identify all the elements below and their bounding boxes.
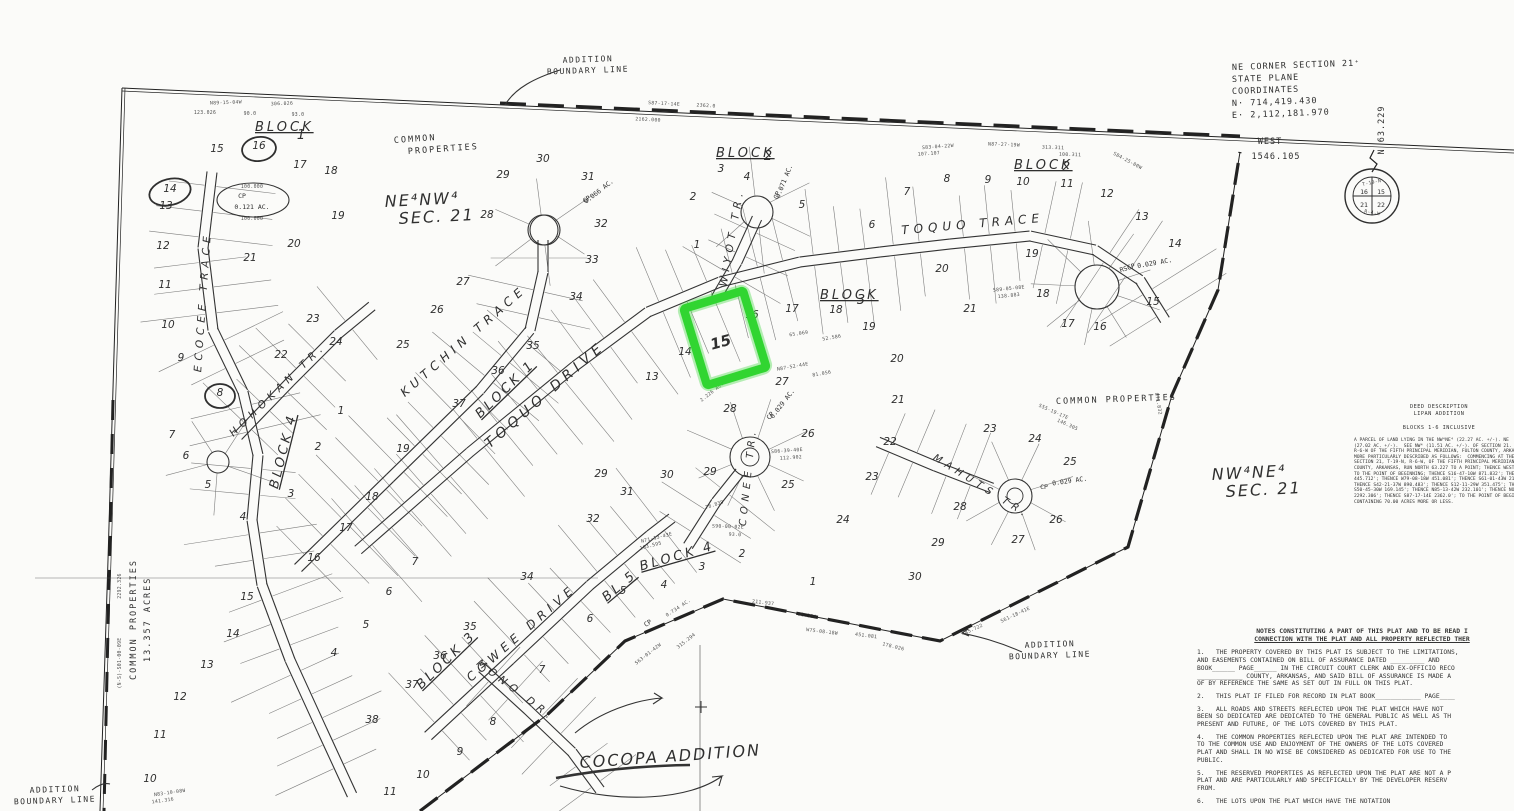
street-label-toquo-trace: TOQUO TRACE bbox=[901, 211, 1045, 237]
notes-line: BOOK______ PAGE______ IN THE CIRCUIT COU… bbox=[1197, 665, 1514, 673]
cul-de-sac bbox=[528, 215, 558, 245]
area-label: SEC. 21 bbox=[1225, 478, 1302, 501]
lot-number: 37 bbox=[452, 398, 466, 410]
lot-number: 18 bbox=[324, 165, 338, 177]
lot-number: 23 bbox=[306, 313, 319, 325]
lot-number: 12 bbox=[173, 691, 187, 703]
bearing-label: 112.902 bbox=[780, 454, 803, 462]
deed-title-line: BLOCKS 1-6 INCLUSIVE bbox=[1354, 425, 1514, 432]
lot-number: 4 bbox=[744, 171, 751, 183]
lot-number: 7 bbox=[169, 429, 176, 441]
bearing-label: S86-39-40E bbox=[771, 447, 803, 455]
lot-number: 1 bbox=[694, 239, 701, 251]
area-label: SEC. 21 bbox=[398, 205, 475, 228]
bearing-label: 90.0 bbox=[244, 111, 257, 117]
deed-title: DEED DESCRIPTIONLIPAN ADDITION BLOCKS 1-… bbox=[1354, 404, 1514, 432]
bearing-label: 100.000 bbox=[241, 216, 263, 222]
notes-heading-line: CONNECTION WITH THE PLAT AND ALL PROPERT… bbox=[1197, 635, 1514, 643]
lot-number: 35 bbox=[463, 621, 477, 633]
area-label: 13.357 ACRES bbox=[143, 577, 153, 662]
lot-number: 19 bbox=[862, 321, 876, 333]
ne-corner-note: STATE PLANE bbox=[1232, 73, 1300, 85]
lot-number: 32 bbox=[586, 513, 600, 525]
block-number: 2 bbox=[1062, 160, 1070, 175]
cocopa-addition-label: COCOPA ADDITION bbox=[579, 740, 762, 772]
deed-title-line: LIPAN ADDITION bbox=[1354, 411, 1514, 418]
addition-boundary-label: ADDITION bbox=[30, 784, 81, 795]
lot-number: 13 bbox=[645, 371, 658, 383]
bearing-label: S90-00-02E bbox=[712, 523, 744, 530]
lot-number: 11 bbox=[383, 786, 396, 798]
plus-mark bbox=[695, 701, 707, 713]
notes-line: ____________ COUNTY, ARKANSAS, AND SAID … bbox=[1197, 673, 1514, 681]
lot-number: 3 bbox=[699, 561, 706, 573]
lot-number: 29 bbox=[931, 537, 945, 549]
lot-number: 29 bbox=[703, 466, 717, 478]
lot-number: 7 bbox=[412, 556, 419, 568]
deed-body-line: 445.712'; THENCE W79-08-18W 451.081'; TH… bbox=[1354, 477, 1514, 483]
lot-number: 8 bbox=[944, 173, 951, 185]
lot-number: 19 bbox=[1025, 248, 1039, 260]
lot-number: 37 bbox=[405, 679, 419, 691]
bearing-label: 211.937 bbox=[752, 599, 775, 608]
bearing-label: 100.000 bbox=[241, 184, 263, 190]
lot-number: 17 bbox=[785, 303, 799, 315]
bearing-label: N89-15-04W bbox=[210, 99, 242, 106]
section-15: 15 bbox=[1377, 188, 1385, 196]
lot-number: 10 bbox=[1016, 176, 1030, 188]
lot-number: 8 bbox=[217, 387, 224, 399]
deed-body-line: COUNTY, ARKANSAS, RUN NORTH 63.227 TO A … bbox=[1354, 466, 1514, 472]
lot-number: 30 bbox=[908, 571, 922, 583]
common-property-label: 0.029 AC. bbox=[1137, 256, 1173, 270]
notes-line: FROM. bbox=[1197, 785, 1514, 793]
notes-line: 2. THIS PLAT IF FILED FOR RECORD IN PLAT… bbox=[1197, 693, 1514, 701]
lot-number: 19 bbox=[396, 443, 410, 455]
plat-map: T-19-NR-4-W16152122TOQUO DRIVEKUTCHIN TR… bbox=[0, 0, 1514, 811]
street-label-ecocee-trace: ECOCEE TRACE bbox=[192, 231, 214, 373]
lot-number: 30 bbox=[660, 469, 674, 481]
bearing-label: (N-S)-S01-00-09E bbox=[117, 637, 123, 688]
notes-line: PUBLIC. bbox=[1197, 757, 1514, 765]
addition-boundary-label: BOUNDARY LINE bbox=[14, 795, 96, 807]
lot-number: 29 bbox=[594, 468, 608, 480]
lot-number: 10 bbox=[143, 773, 157, 785]
notes-line: PRESENT AND FUTURE, OF THE LOTS COVERED … bbox=[1197, 721, 1514, 729]
lot-number: 20 bbox=[935, 263, 949, 275]
block-number: 1 bbox=[297, 128, 305, 143]
bearing-label: S89-05-08E bbox=[993, 284, 1025, 293]
lot-number: 12 bbox=[156, 240, 170, 252]
lot-number: 8 bbox=[490, 716, 497, 728]
lot-number: 14 bbox=[1168, 238, 1181, 250]
lot-number: 9 bbox=[457, 746, 464, 758]
lot-number: 4 bbox=[661, 579, 668, 591]
street-label-conee-tr-: CONEE TR. bbox=[738, 427, 759, 527]
lot-number: 21 bbox=[963, 303, 976, 315]
ne-corner-note: NE CORNER SECTION 21⁺ bbox=[1232, 59, 1361, 73]
addition-boundary-label: ADDITION bbox=[1025, 639, 1076, 650]
cul-de-sac bbox=[741, 196, 773, 228]
notes-line: BEEN SO DEDICATED ARE DEDICATED TO THE G… bbox=[1197, 713, 1514, 721]
bearing-label: 178.026 bbox=[882, 641, 905, 652]
cul-de-sac bbox=[207, 451, 229, 473]
block-number: 2 bbox=[764, 149, 772, 164]
deed-title-line: DEED DESCRIPTION bbox=[1354, 404, 1514, 411]
lot-number: 25 bbox=[396, 339, 410, 351]
north-tick-distance: N 63.229 bbox=[1377, 106, 1387, 155]
highlighted-lot-number: 15 bbox=[708, 331, 733, 354]
lot-number: 29 bbox=[496, 169, 510, 181]
lot-number: 11 bbox=[153, 729, 166, 741]
lot-number: 10 bbox=[161, 319, 175, 331]
block-label: BLOCK 4 bbox=[267, 412, 300, 490]
notes-line: 4. THE COMMON PROPERTIES REFLECTED UPON … bbox=[1197, 734, 1514, 742]
bearing-label: S84-25-00W bbox=[1112, 151, 1143, 171]
lot-number: 5 bbox=[363, 619, 370, 631]
bearing-label: 107.107 bbox=[918, 150, 941, 158]
lot-number: 24 bbox=[836, 514, 849, 526]
lot-number: 11 bbox=[1060, 178, 1073, 190]
lot-number: 4 bbox=[331, 647, 338, 659]
lot-number: 28 bbox=[953, 501, 967, 513]
notes-line: PLAT AND SHALL IN NO WISE BE CONSIDERED … bbox=[1197, 749, 1514, 757]
lot-number: 20 bbox=[287, 238, 301, 250]
lot-number: 2 bbox=[690, 191, 697, 203]
bearing-label: 78.839 bbox=[705, 499, 725, 511]
section-22: 22 bbox=[1377, 201, 1385, 209]
bearing-label: 93.0 bbox=[729, 532, 742, 538]
common-property-label: 0.029 AC. bbox=[768, 387, 796, 420]
deed-title-line bbox=[1354, 418, 1514, 425]
bearing-label: S87-17-14E bbox=[648, 100, 680, 108]
lot-number: 17 bbox=[339, 522, 353, 534]
lot-number: 25 bbox=[781, 479, 795, 491]
lot-number: 35 bbox=[526, 340, 540, 352]
lot-number: 11 bbox=[158, 279, 171, 291]
ne-corner-note: N· 714,419.430 bbox=[1232, 96, 1318, 109]
lot-number: 17 bbox=[293, 159, 307, 171]
lot-number: 2 bbox=[315, 441, 322, 453]
bearing-label: 138.883 bbox=[997, 292, 1020, 300]
lot-number: 33 bbox=[585, 254, 598, 266]
lot-number: 31 bbox=[581, 171, 594, 183]
lot-number: 23 bbox=[983, 423, 996, 435]
area-label: COMMON PROPERTIES bbox=[129, 559, 139, 680]
addition-boundary-label: ADDITION bbox=[563, 54, 614, 65]
lot-number: 27 bbox=[456, 276, 470, 288]
lot-number: 22 bbox=[274, 349, 288, 361]
street-label-mahuts-tr-: MAHUTS TR. bbox=[931, 452, 1032, 521]
lot-number: 30 bbox=[536, 153, 550, 165]
lot-number: 12 bbox=[1100, 188, 1114, 200]
lot-number: 16 bbox=[307, 552, 321, 564]
lot-number: 15 bbox=[210, 143, 224, 155]
lot-number: 5 bbox=[620, 585, 627, 597]
common-property-label: 0.029 AC. bbox=[1052, 475, 1088, 488]
bearing-label: 65.069 bbox=[789, 330, 809, 339]
cul-de-sac bbox=[530, 215, 560, 245]
lot-number: 13 bbox=[200, 659, 213, 671]
bearing-label: 313.311 bbox=[1042, 145, 1065, 152]
notes-line: 3. ALL ROADS AND STREETS REFLECTED UPON … bbox=[1197, 706, 1514, 714]
notes-body: 1. THE PROPERTY COVERED BY THIS PLAT IS … bbox=[1197, 649, 1514, 810]
lot-number: 6 bbox=[386, 586, 393, 598]
plat-notes-block: NOTES CONSTITUTING A PART OF THIS PLAT A… bbox=[1197, 627, 1514, 810]
bearing-label: 315.294 bbox=[676, 632, 697, 650]
lot-number: 1 bbox=[338, 405, 345, 417]
deed-body: A PARCEL OF LAND LYING IN THE NW⁴NE⁴ (22… bbox=[1354, 438, 1514, 505]
bearing-label: 451.081 bbox=[855, 632, 878, 641]
lot-number: 31 bbox=[620, 486, 633, 498]
bearing-label: N87-52-44E bbox=[777, 361, 809, 372]
lot-number: 15 bbox=[240, 591, 254, 603]
lot-number: 15 bbox=[1146, 296, 1160, 308]
notes-heading: NOTES CONSTITUTING A PART OF THIS PLAT A… bbox=[1197, 627, 1514, 643]
common-property-label: 0.121 AC. bbox=[234, 203, 269, 211]
notes-line: 6. THE LOTS UPON THE PLAT WHICH HAVE THE… bbox=[1197, 798, 1514, 806]
lot-number: 5 bbox=[205, 479, 212, 491]
deed-body-line: CONTAINING 70.00 ACRES MORE OR LESS. bbox=[1354, 500, 1514, 506]
common-property-label: CP bbox=[238, 192, 246, 200]
bearing-label: N87-27-19W bbox=[988, 141, 1020, 148]
lot-number: 17 bbox=[1061, 318, 1075, 330]
lot-number: 9 bbox=[985, 174, 992, 186]
lot-number: 38 bbox=[365, 714, 379, 726]
bearing-label: 93.0 bbox=[292, 112, 305, 118]
street-lines bbox=[198, 171, 1169, 797]
deed-description-block: DEED DESCRIPTIONLIPAN ADDITION BLOCKS 1-… bbox=[1354, 404, 1514, 505]
lot-number: 7 bbox=[539, 664, 546, 676]
lot-number: 25 bbox=[1063, 456, 1077, 468]
lot-number: 3 bbox=[288, 488, 295, 500]
lot-number: 18 bbox=[829, 304, 843, 316]
bearing-label: 146.305 bbox=[1056, 418, 1079, 433]
lot-number: 14 bbox=[226, 628, 239, 640]
deed-body-line: R-6-W OF THE FIFTH PRINCIPAL MERIDIAN, F… bbox=[1354, 449, 1514, 455]
section-21: 21 bbox=[1360, 201, 1368, 209]
addition-boundary-label: BOUNDARY LINE bbox=[547, 65, 629, 77]
area-label: COMMON bbox=[394, 133, 437, 146]
bearing-label: 100.311 bbox=[1059, 152, 1082, 159]
lot-number: 24 bbox=[329, 336, 342, 348]
bearing-label: 306.026 bbox=[271, 101, 294, 108]
block-label: BLOCK bbox=[820, 288, 879, 303]
lot-number: 19 bbox=[331, 210, 345, 222]
lot-number: 5 bbox=[799, 199, 806, 211]
lot-number: 26 bbox=[801, 428, 815, 440]
bearing-label: 98.350 bbox=[797, 612, 817, 621]
lot-number: 4 bbox=[240, 511, 247, 523]
lot-number: 20 bbox=[890, 353, 904, 365]
lot-number: 16 bbox=[1093, 321, 1107, 333]
lot-number: 26 bbox=[1049, 514, 1063, 526]
lot-number: 6 bbox=[587, 613, 594, 625]
lot-number: 28 bbox=[480, 209, 494, 221]
lot-number: 6 bbox=[869, 219, 876, 231]
lot-number: 23 bbox=[865, 471, 878, 483]
lot-number: 7 bbox=[904, 186, 911, 198]
deed-body-line: 2292.306'; THENCE S87-17-14E 2362.0'; TO… bbox=[1354, 494, 1514, 500]
west-distance-value: 1546.105 bbox=[1252, 152, 1301, 162]
notes-line: 1. THE PROPERTY COVERED BY THIS PLAT IS … bbox=[1197, 649, 1514, 657]
lot-number: 18 bbox=[1036, 288, 1050, 300]
section-16: 16 bbox=[1360, 188, 1368, 196]
bearing-label: 81.056 bbox=[812, 369, 832, 378]
lot-number: 21 bbox=[891, 394, 904, 406]
notes-line: TO THE COMMON USE AND ENJOYMENT OF THE O… bbox=[1197, 741, 1514, 749]
common-property-label: CP bbox=[642, 618, 653, 629]
lot-number: 22 bbox=[883, 436, 897, 448]
common-property-label: 0.071 AC. bbox=[774, 163, 795, 199]
bearing-label: 2162.000 bbox=[635, 116, 661, 123]
notes-line: OF BY REFERENCE THE SAME AS SET OUT IN F… bbox=[1197, 680, 1514, 688]
lot-number: 34 bbox=[520, 571, 533, 583]
lot-number: 36 bbox=[491, 365, 505, 377]
lot-number: 21 bbox=[243, 252, 256, 264]
lot-number: 10 bbox=[416, 769, 430, 781]
ne-corner-note: E· 2,112,181.970 bbox=[1232, 108, 1330, 121]
notes-line: AND EASEMENTS CONTAINED ON BILL OF ASSUR… bbox=[1197, 657, 1514, 665]
lot-number: 1 bbox=[810, 576, 817, 588]
bearing-label: 2292.326 bbox=[117, 573, 123, 599]
notes-heading-line: NOTES CONSTITUTING A PART OF THIS PLAT A… bbox=[1197, 627, 1514, 635]
lot-number: 26 bbox=[430, 304, 444, 316]
lot-number: 34 bbox=[569, 291, 582, 303]
bearing-label: N83-10-08W bbox=[154, 788, 186, 798]
common-property-label: RSCP bbox=[1119, 262, 1136, 274]
bearing-label: S63-01-42W bbox=[634, 642, 663, 666]
block-number: 3 bbox=[857, 293, 865, 308]
lot-number: 18 bbox=[365, 491, 379, 503]
bearing-label: 2362.0 bbox=[696, 103, 715, 110]
lot-number: 14 bbox=[163, 183, 176, 195]
lot-number: 6 bbox=[183, 450, 190, 462]
bearing-label: W75-08-18W bbox=[806, 627, 838, 637]
cul-de-sac bbox=[1075, 265, 1119, 309]
common-property-label: CP bbox=[1040, 483, 1048, 491]
bearing-label: 123.026 bbox=[194, 110, 216, 116]
lot-number: 13 bbox=[1135, 211, 1148, 223]
bearing-label: 52.586 bbox=[822, 333, 842, 342]
lot-number: 28 bbox=[723, 403, 737, 415]
addition-boundary-label: BOUNDARY LINE bbox=[1009, 650, 1091, 662]
lot-number: 27 bbox=[1011, 534, 1025, 546]
lot-number: 2 bbox=[739, 548, 746, 560]
west-distance-label: WEST bbox=[1258, 137, 1282, 147]
ne-corner-note: COORDINATES bbox=[1232, 85, 1300, 97]
deed-body-line: A PARCEL OF LAND LYING IN THE NW⁴NE⁴ (22… bbox=[1354, 438, 1514, 444]
notes-line: PLAT AND ARE PARTICULARLY AND SPECIFICAL… bbox=[1197, 777, 1514, 785]
lot-number: 36 bbox=[433, 650, 447, 662]
lot-number: 32 bbox=[594, 218, 608, 230]
bearing-label: S83-04-22W bbox=[922, 143, 954, 151]
lot-number: 9 bbox=[178, 352, 185, 364]
lot-number: 27 bbox=[775, 376, 789, 388]
lot-number: 16 bbox=[252, 140, 266, 152]
notes-line: 5. THE RESERVED PROPERTIES AS REFLECTED … bbox=[1197, 770, 1514, 778]
lot-number: 24 bbox=[1028, 433, 1041, 445]
lot-number: 3 bbox=[718, 163, 725, 175]
